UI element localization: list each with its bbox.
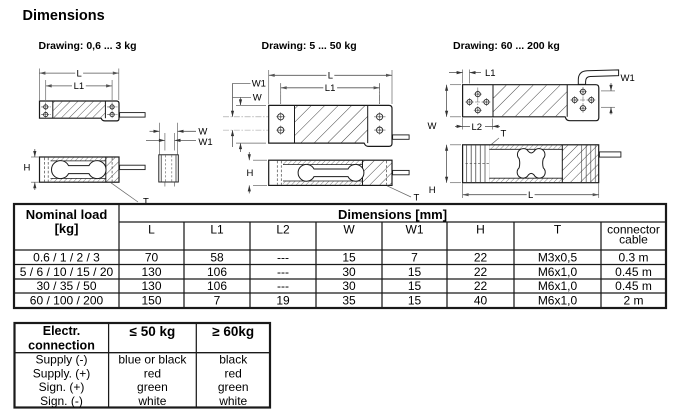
svg-text:---: --- xyxy=(277,250,289,264)
svg-text:60 / 100 / 200: 60 / 100 / 200 xyxy=(30,294,104,308)
svg-text:≤ 50 kg: ≤ 50 kg xyxy=(130,324,176,339)
svg-text:L: L xyxy=(148,223,155,237)
svg-text:H: H xyxy=(476,223,485,237)
svg-text:0.3 m: 0.3 m xyxy=(618,250,648,264)
svg-text:blue or black: blue or black xyxy=(118,353,187,367)
svg-text:30 / 35 / 50: 30 / 35 / 50 xyxy=(36,279,96,293)
svg-text:Drawing: 60 ... 200 kg: Drawing: 60 ... 200 kg xyxy=(453,40,560,52)
svg-text:Dimensions [mm]: Dimensions [mm] xyxy=(338,207,447,222)
svg-text:Electr.: Electr. xyxy=(43,324,81,338)
svg-text:cable: cable xyxy=(619,233,648,247)
svg-text:W1: W1 xyxy=(198,137,212,148)
svg-text:106: 106 xyxy=(207,265,227,279)
svg-text:black: black xyxy=(219,353,248,367)
svg-text:0.45 m: 0.45 m xyxy=(615,279,652,293)
svg-text:T: T xyxy=(414,192,420,203)
svg-text:red: red xyxy=(144,366,161,380)
svg-text:M6x1,0: M6x1,0 xyxy=(538,279,578,293)
svg-text:22: 22 xyxy=(474,279,488,293)
svg-text:W1: W1 xyxy=(621,73,635,84)
svg-text:H: H xyxy=(24,163,31,174)
svg-text:150: 150 xyxy=(141,294,161,308)
svg-text:Sign. (+): Sign. (+) xyxy=(39,380,85,394)
svg-text:0.45 m: 0.45 m xyxy=(615,265,652,279)
svg-text:W: W xyxy=(198,127,207,138)
svg-text:L1: L1 xyxy=(74,81,85,92)
svg-text:Drawing: 5 ... 50 kg: Drawing: 5 ... 50 kg xyxy=(262,40,357,52)
svg-text:T: T xyxy=(143,197,149,208)
svg-text:30: 30 xyxy=(342,279,356,293)
svg-text:30: 30 xyxy=(342,265,356,279)
svg-text:70: 70 xyxy=(145,250,159,264)
svg-text:Dimensions: Dimensions xyxy=(23,8,105,24)
svg-text:---: --- xyxy=(277,265,289,279)
svg-text:5 / 6 / 10 / 15 / 20: 5 / 6 / 10 / 15 / 20 xyxy=(20,265,114,279)
svg-text:W: W xyxy=(428,121,437,132)
svg-text:white: white xyxy=(137,394,166,408)
svg-text:19: 19 xyxy=(276,294,290,308)
svg-text:W: W xyxy=(253,92,262,103)
svg-text:7: 7 xyxy=(411,250,418,264)
svg-text:≥ 60kg: ≥ 60kg xyxy=(212,324,254,339)
svg-text:15: 15 xyxy=(342,250,356,264)
svg-text:2 m: 2 m xyxy=(623,294,643,308)
svg-text:H: H xyxy=(247,168,254,179)
svg-text:T: T xyxy=(501,128,507,139)
svg-text:L: L xyxy=(328,71,333,82)
svg-text:M3x0,5: M3x0,5 xyxy=(538,250,578,264)
svg-text:15: 15 xyxy=(408,279,422,293)
svg-text:Supply (-): Supply (-) xyxy=(35,353,87,367)
svg-text:M6x1,0: M6x1,0 xyxy=(538,294,578,308)
svg-text:22: 22 xyxy=(474,250,488,264)
svg-text:Drawing: 0,6 ... 3 kg: Drawing: 0,6 ... 3 kg xyxy=(39,40,137,52)
svg-text:40: 40 xyxy=(474,294,488,308)
svg-text:L: L xyxy=(76,68,81,79)
svg-text:130: 130 xyxy=(141,279,161,293)
svg-text:H: H xyxy=(429,185,436,196)
svg-text:connection: connection xyxy=(28,338,95,352)
svg-text:Supply. (+): Supply. (+) xyxy=(33,366,90,380)
svg-text:M6x1,0: M6x1,0 xyxy=(538,265,578,279)
svg-text:Sign. (-): Sign. (-) xyxy=(40,394,83,408)
svg-text:L1: L1 xyxy=(210,223,224,237)
svg-text:---: --- xyxy=(277,279,289,293)
svg-text:L1: L1 xyxy=(325,83,336,94)
svg-text:W1: W1 xyxy=(406,223,424,237)
svg-text:106: 106 xyxy=(207,279,227,293)
svg-text:L2: L2 xyxy=(472,122,483,133)
svg-text:[kg]: [kg] xyxy=(55,221,79,236)
svg-text:7: 7 xyxy=(214,294,221,308)
svg-text:L1: L1 xyxy=(485,68,496,79)
svg-text:red: red xyxy=(225,366,242,380)
svg-text:35: 35 xyxy=(342,294,356,308)
svg-text:green: green xyxy=(218,380,249,394)
svg-text:W1: W1 xyxy=(252,79,266,90)
svg-text:W: W xyxy=(343,223,355,237)
svg-text:white: white xyxy=(218,394,247,408)
svg-text:15: 15 xyxy=(408,265,422,279)
svg-text:T: T xyxy=(554,223,562,237)
svg-text:0.6 / 1 / 2 / 3: 0.6 / 1 / 2 / 3 xyxy=(33,250,100,264)
svg-text:L2: L2 xyxy=(276,223,290,237)
svg-text:green: green xyxy=(137,380,168,394)
svg-text:L: L xyxy=(528,190,533,201)
svg-text:22: 22 xyxy=(474,265,488,279)
svg-text:15: 15 xyxy=(408,294,422,308)
svg-text:130: 130 xyxy=(141,265,161,279)
svg-text:58: 58 xyxy=(210,250,224,264)
svg-text:Nominal load: Nominal load xyxy=(26,207,108,222)
